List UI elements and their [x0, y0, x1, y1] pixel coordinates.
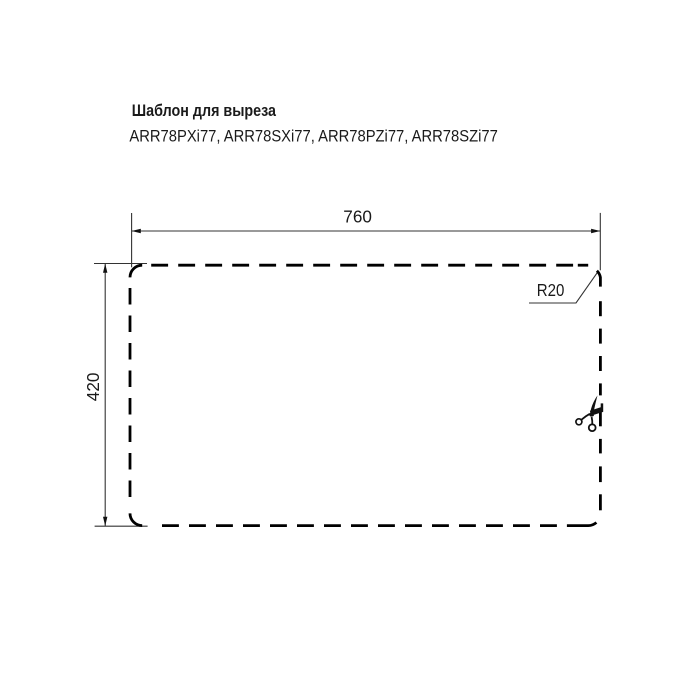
svg-text:R20: R20: [537, 280, 565, 300]
svg-text:420: 420: [83, 372, 103, 401]
svg-text:ARR78PXi77, ARR78SXi77, ARR78P: ARR78PXi77, ARR78SXi77, ARR78PZi77, ARR7…: [129, 127, 497, 145]
svg-text:Шаблон для выреза: Шаблон для выреза: [132, 102, 277, 120]
svg-text:760: 760: [343, 207, 372, 227]
